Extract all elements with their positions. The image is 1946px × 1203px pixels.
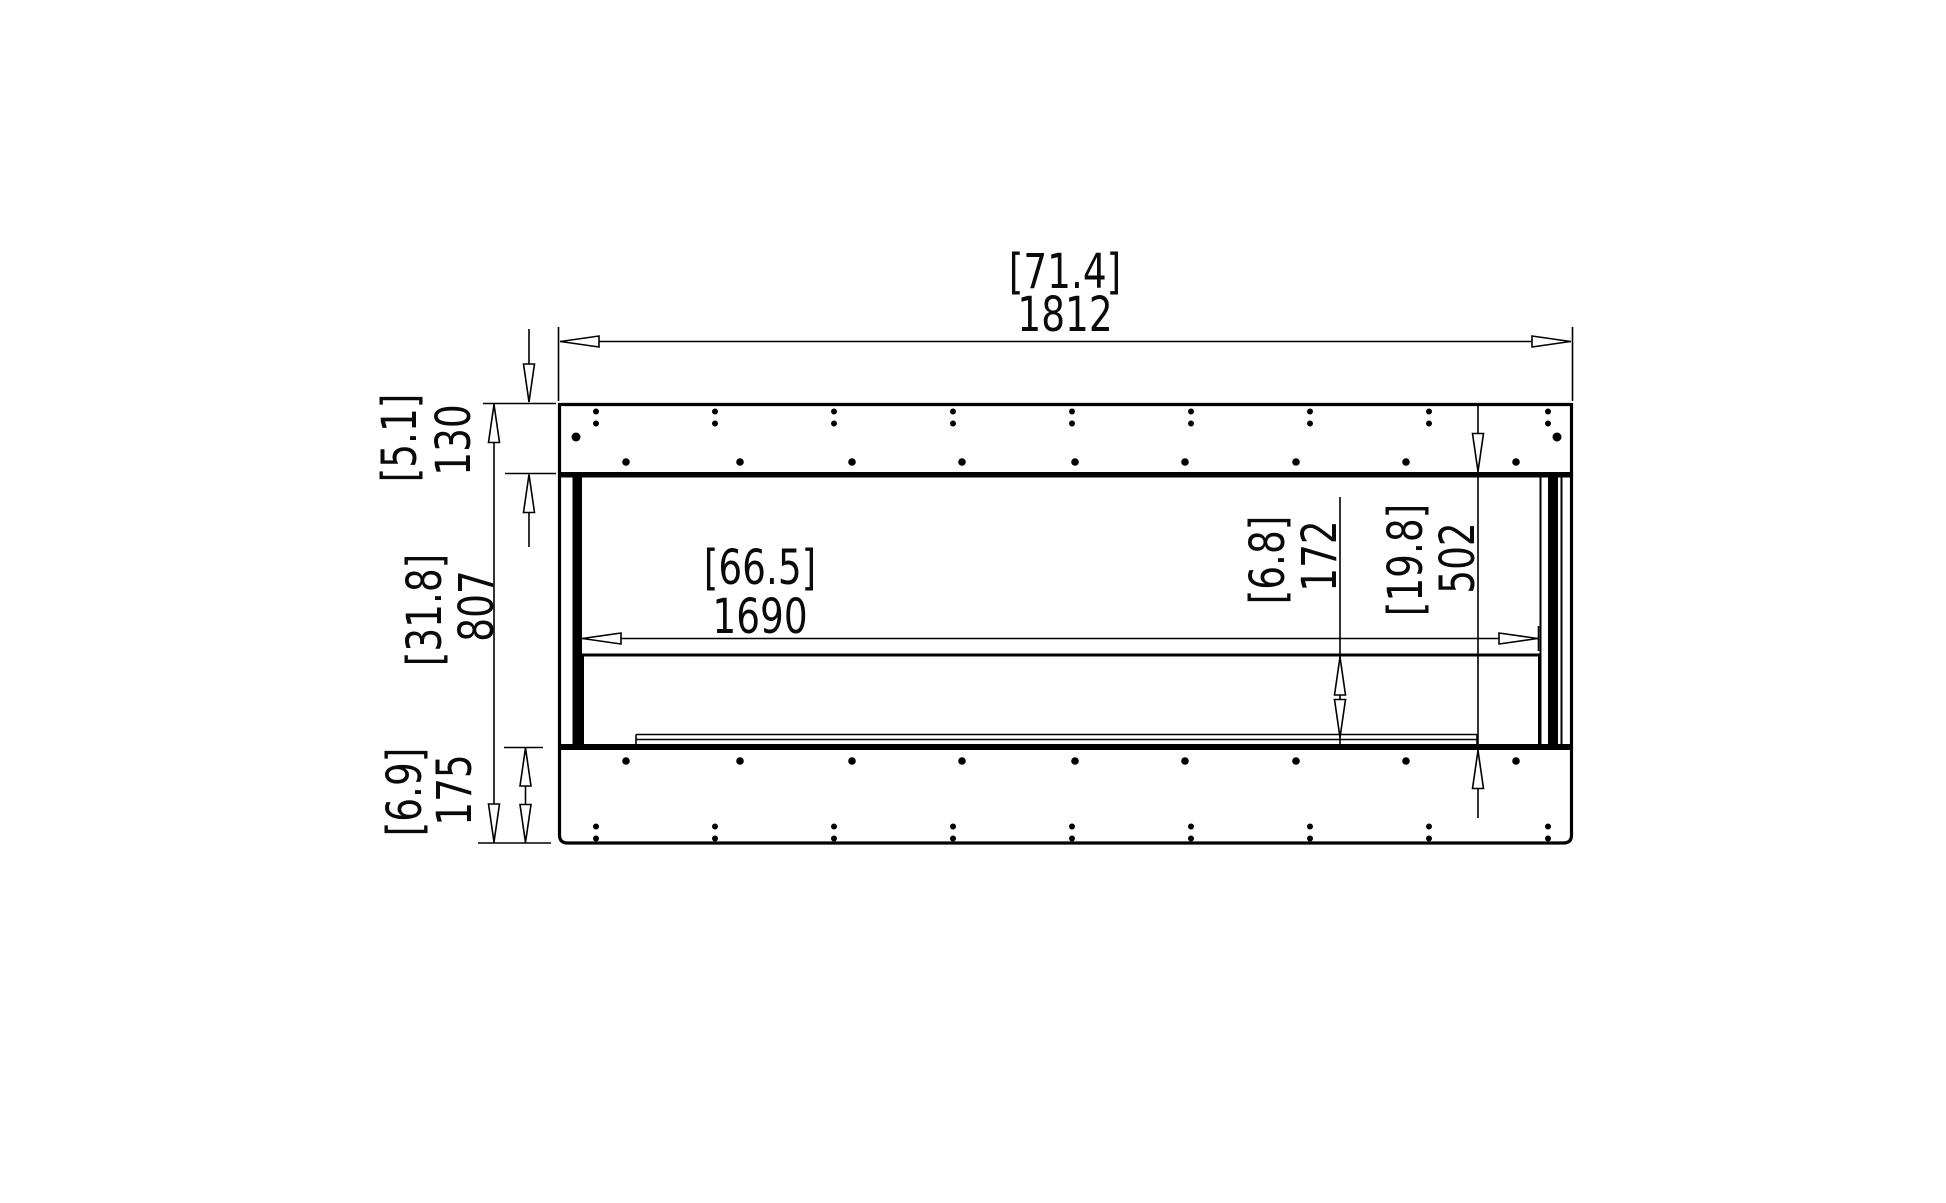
screw-dot [1188,421,1194,427]
screw-dot [950,409,956,415]
screw-dot [958,458,966,466]
arrowhead-up [489,405,500,443]
dimension-overall-width: [71.4] 1812 [559,245,1573,401]
screw-dot [712,421,718,427]
screw-dot [1426,824,1432,830]
firebox-front-elevation-drawing: [71.4] 1812 [5.1] 130 [31.8] 807 [6.9] 1… [0,0,1946,1203]
opening-width-imperial-label: [66.5] [704,541,817,597]
firebox-floor-line [561,744,1570,750]
overall-width-metric-label: 1812 [1017,288,1112,344]
screw-dot [1545,824,1551,830]
screw-dot [1402,458,1410,466]
screw-dot [593,824,599,830]
screw-dot [1071,458,1079,466]
arrowhead-left [583,633,622,644]
screw-dot [1512,458,1520,466]
burner-inset-metric-label: 172 [1293,520,1349,591]
screw-dot [736,458,744,466]
arrowhead-left [561,336,600,347]
screw-dot [1553,433,1562,442]
dimension-opening-height: [19.8] 502 [1379,404,1487,818]
screw-dot [950,421,956,427]
screw-dot [950,824,956,830]
screw-dot [848,458,856,466]
base-section-imperial-label: [6.9] [378,748,434,837]
screw-dot [1307,836,1313,842]
screw-dot [712,409,718,415]
arrowhead-up [524,475,535,513]
screw-dot [736,757,744,765]
arrowhead-down [520,805,531,843]
screw-dot [1307,409,1313,415]
dimension-top-section-height: [5.1] 130 [373,329,556,547]
screw-dot [1292,458,1300,466]
screw-dot [593,409,599,415]
screw-dot [831,824,837,830]
arrowhead-down [1473,434,1484,472]
screw-dot [831,409,837,415]
arrowhead-right [1532,336,1571,347]
unit-body [560,405,1572,844]
screw-dot [1307,421,1313,427]
technical-drawing-page: [71.4] 1812 [5.1] 130 [31.8] 807 [6.9] 1… [0,0,1946,1203]
screw-dot [1512,757,1520,765]
screw-dot [831,836,837,842]
overall-height-metric-label: 807 [450,570,506,641]
screw-dot [1426,836,1432,842]
right-glass-strip [1548,478,1558,745]
screw-dot [950,836,956,842]
opening-width-metric-label: 1690 [712,590,807,646]
screw-dot [1071,757,1079,765]
dimension-base-section-height: [6.9] 175 [378,748,551,844]
screw-dot [1188,836,1194,842]
screw-dot [1188,824,1194,830]
screw-dot [1188,409,1194,415]
dimension-burner-inset-height: [6.8] 172 [1241,497,1349,746]
screw-dot [712,836,718,842]
screw-dot [593,421,599,427]
screw-dot [1292,757,1300,765]
arrowhead-up [1335,657,1346,695]
screw-dot [622,458,630,466]
screw-dot [622,757,630,765]
burner-inset-imperial-label: [6.8] [1241,516,1297,605]
arrowhead-down [489,804,500,842]
screw-dot [1545,836,1551,842]
screw-dot [1181,757,1189,765]
screw-dot [1069,421,1075,427]
screw-dot [831,421,837,427]
arrowhead-up [520,748,531,786]
screw-dot [1069,836,1075,842]
top-section-imperial-label: [5.1] [373,394,429,483]
opening-height-imperial-label: [19.8] [1379,504,1435,617]
opening-height-metric-label: 502 [1431,522,1487,593]
screw-dot [1181,458,1189,466]
screw-dot [1426,409,1432,415]
screw-dot [593,836,599,842]
outer-casing-outline [560,405,1572,844]
screw-dot [1545,421,1551,427]
screw-dot [848,757,856,765]
screw-dot [1307,824,1313,830]
overall-height-imperial-label: [31.8] [398,554,454,667]
screw-dot [1402,757,1410,765]
top-band-inner-edge [561,472,1570,478]
arrowhead-down [524,364,535,402]
left-glass-strip [573,478,583,745]
screw-dot [1426,421,1432,427]
top-section-metric-label: 130 [427,404,483,475]
base-section-metric-label: 175 [428,754,484,825]
arrowhead-up [1473,751,1484,789]
screw-dot [572,433,581,442]
screw-dot [958,757,966,765]
screw-dot [1069,409,1075,415]
screw-dot [1069,824,1075,830]
screw-dot [712,824,718,830]
arrowhead-right [1499,633,1538,644]
screw-dot [1545,409,1551,415]
arrowhead-down [1335,700,1346,738]
